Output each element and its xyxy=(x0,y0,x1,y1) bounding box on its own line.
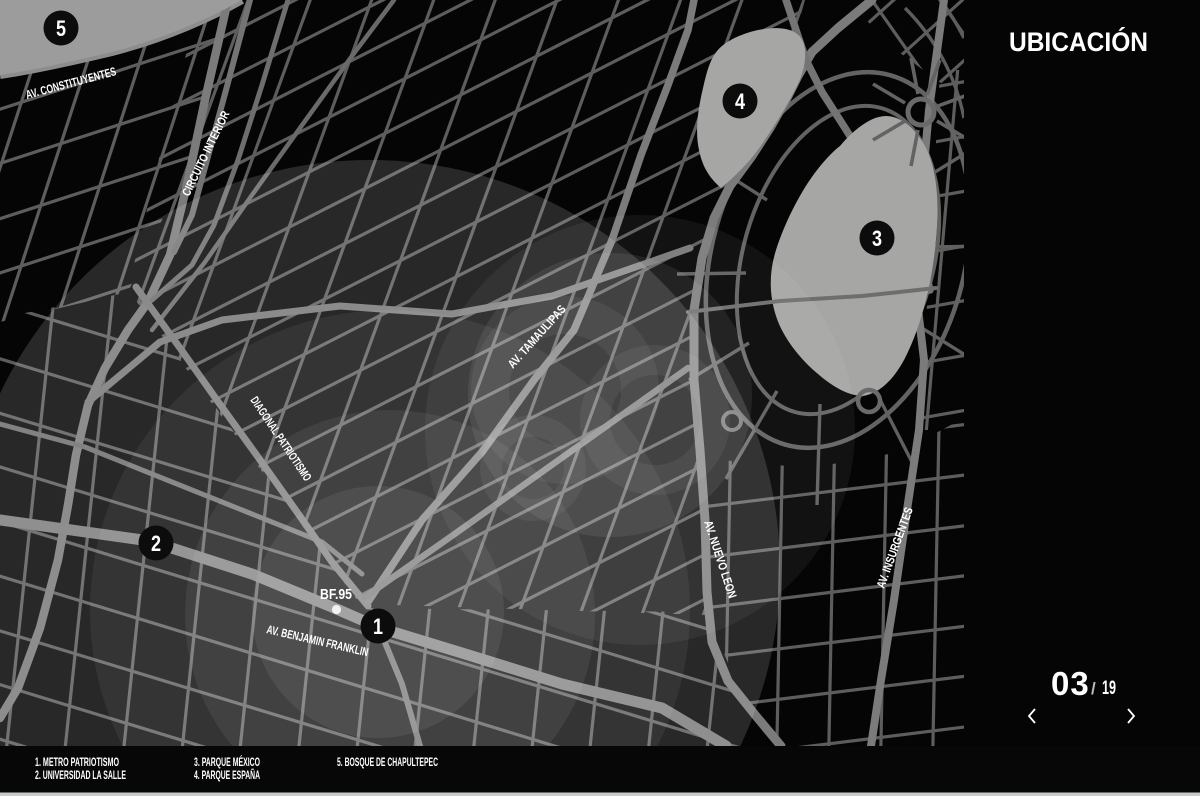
svg-text:5. BOSQUE DE CHAPULTEPEC: 5. BOSQUE DE CHAPULTEPEC xyxy=(337,755,438,769)
svg-text:5: 5 xyxy=(56,17,66,41)
svg-text:/: / xyxy=(1091,679,1096,698)
svg-text:3. PARQUE MÉXICO: 3. PARQUE MÉXICO xyxy=(194,754,260,769)
svg-text:1: 1 xyxy=(373,615,383,639)
svg-text:2: 2 xyxy=(151,532,161,556)
svg-text:03: 03 xyxy=(1051,665,1090,702)
svg-text:4: 4 xyxy=(735,90,746,114)
svg-text:4. PARQUE ESPAÑA: 4. PARQUE ESPAÑA xyxy=(194,767,260,782)
svg-text:3: 3 xyxy=(872,227,882,251)
svg-text:2. UNIVERSIDAD LA SALLE: 2. UNIVERSIDAD LA SALLE xyxy=(35,768,126,782)
svg-text:19: 19 xyxy=(1102,678,1116,699)
svg-text:UBICACIÓN: UBICACIÓN xyxy=(1009,26,1148,57)
svg-text:BF.95: BF.95 xyxy=(320,586,352,603)
svg-text:1. METRO PATRIOTISMO: 1. METRO PATRIOTISMO xyxy=(35,755,119,769)
